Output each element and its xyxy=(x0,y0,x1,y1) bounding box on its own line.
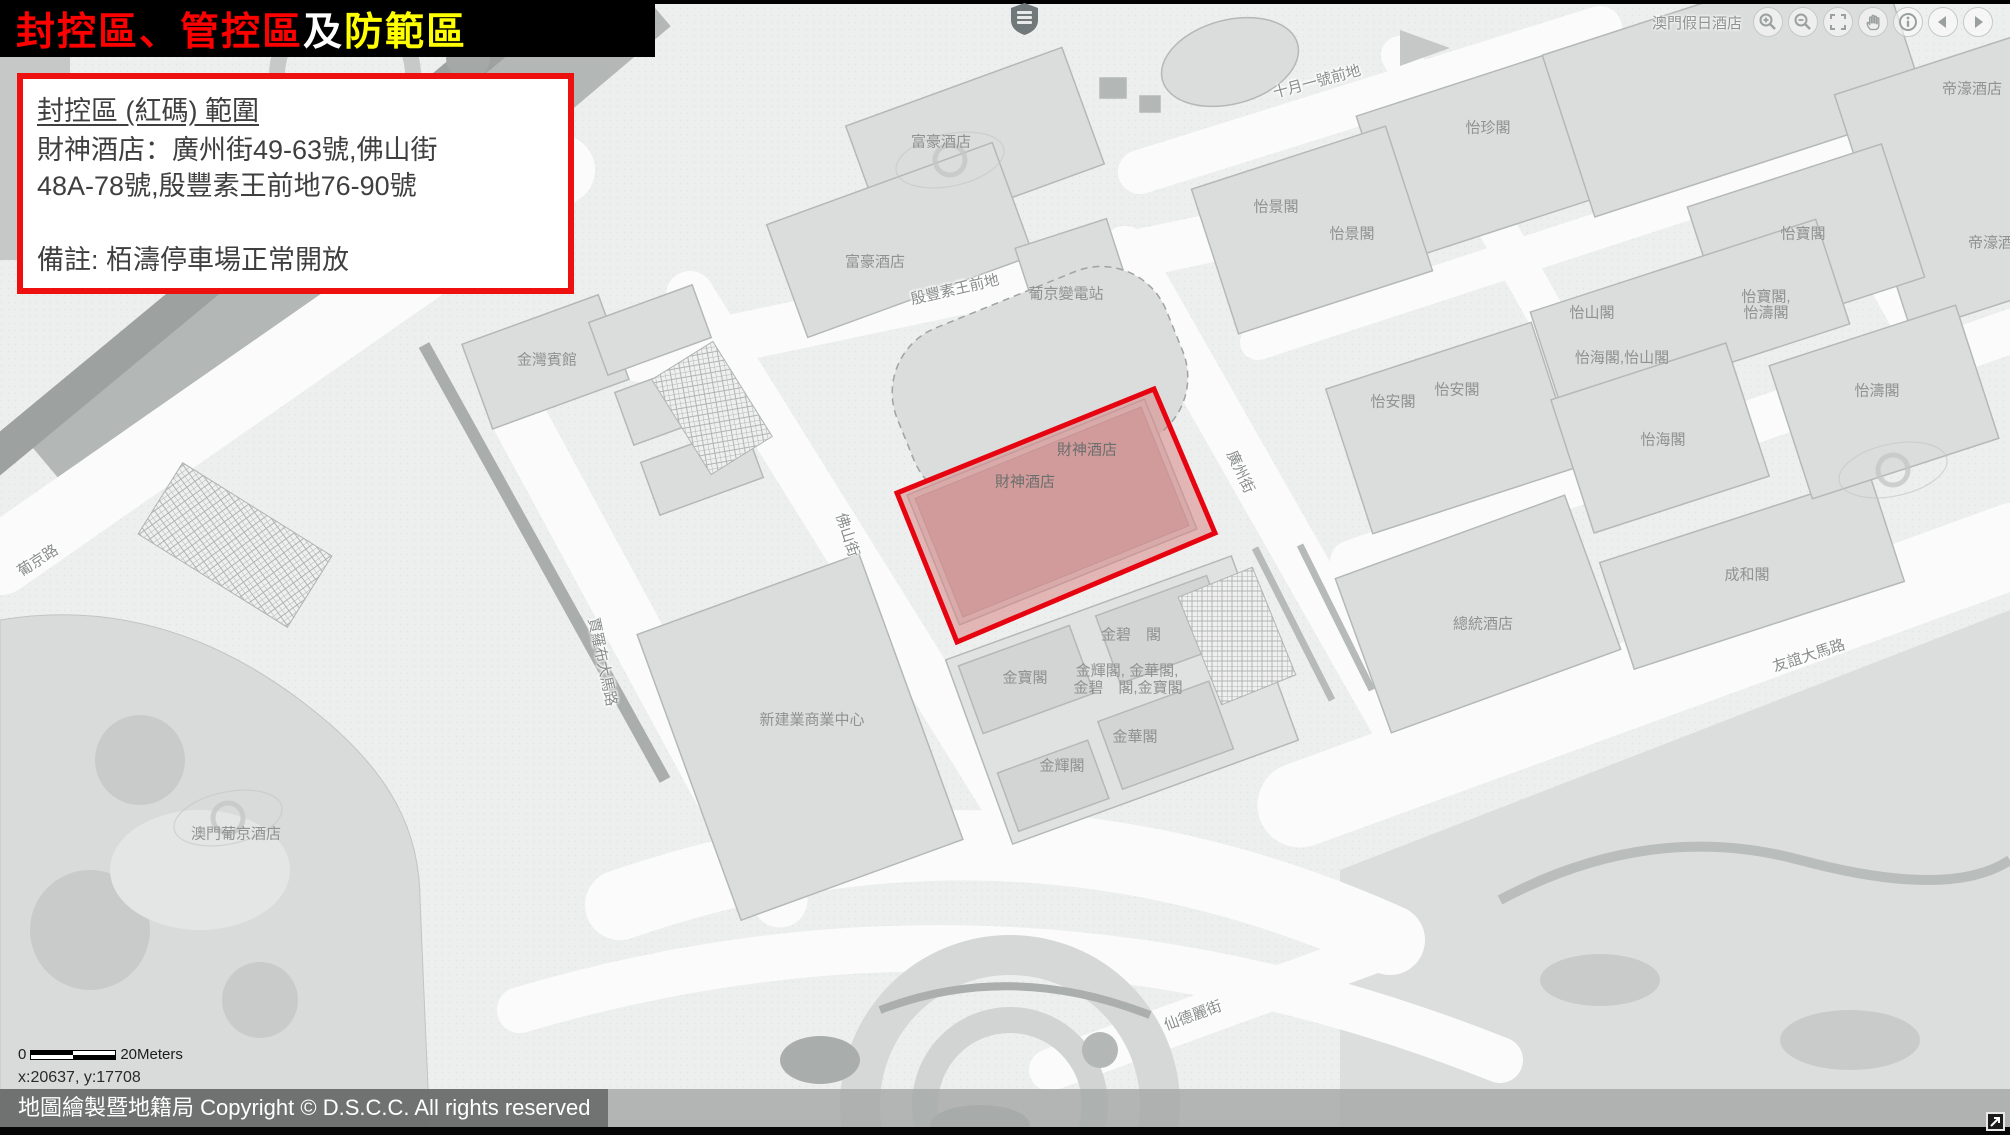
previous-extent-button[interactable] xyxy=(1928,7,1958,37)
info-heading: 封控區 (紅碼) 範圍 xyxy=(37,89,554,128)
pan-button[interactable] xyxy=(1858,7,1888,37)
page-title: 封控區、管控區及防範區 xyxy=(0,0,655,57)
map-application: 十月一號前地富豪酒店富豪酒店葡京變電站怡珍閣怡景閣怡景閣帝濠酒店帝濠酒店怡寶閣怡… xyxy=(0,0,2010,1135)
title-yellow-part: 防範區 xyxy=(344,1,467,57)
copyright-text: 地圖繪製暨地籍局 Copyright © D.S.C.C. All rights… xyxy=(0,1089,608,1127)
scale-zero: 0 xyxy=(18,1046,26,1063)
expand-corner-button[interactable] xyxy=(1986,1112,2005,1131)
info-note: 備註: 栢濤停車場正常開放 xyxy=(37,238,554,277)
zoom-in-button[interactable] xyxy=(1753,7,1783,37)
shield-icon xyxy=(1011,3,1038,35)
fullscreen-button[interactable] xyxy=(1823,7,1853,37)
title-white-part: 及 xyxy=(303,1,344,57)
scale-bar-graphic xyxy=(30,1050,116,1060)
pan-hand-icon xyxy=(1863,12,1883,32)
zoom-out-icon xyxy=(1793,12,1813,32)
identify-button[interactable] xyxy=(1893,7,1923,37)
zoom-out-button[interactable] xyxy=(1788,7,1818,37)
next-extent-button[interactable] xyxy=(1963,7,1993,37)
map-toolbar: 澳門假日酒店 xyxy=(1652,7,1993,37)
forward-arrow-icon xyxy=(1968,12,1988,32)
hotel-label: 澳門假日酒店 xyxy=(1652,12,1742,33)
info-icon xyxy=(1898,12,1918,32)
fullscreen-icon xyxy=(1828,12,1848,32)
title-red-part: 封控區、管控區 xyxy=(16,1,303,57)
lockdown-info-box: 封控區 (紅碼) 範圍 財神酒店：廣州街49-63號,佛山街 48A-78號,殷… xyxy=(17,73,574,294)
bottom-border-strip xyxy=(0,1127,2010,1135)
zoom-in-icon xyxy=(1758,12,1778,32)
back-arrow-icon xyxy=(1933,12,1953,32)
cursor-coordinates: x:20637, y:17708 xyxy=(18,1069,141,1087)
diagonal-arrow-icon xyxy=(1989,1115,2002,1128)
footer-bar: 地圖繪製暨地籍局 Copyright © D.S.C.C. All rights… xyxy=(0,1089,2010,1127)
info-line1: 財神酒店：廣州街49-63號,佛山街 xyxy=(37,132,554,168)
info-line2: 48A-78號,殷豐素王前地76-90號 xyxy=(37,168,554,204)
scale-bar: 0 20Meters xyxy=(18,1046,183,1063)
scale-distance: 20Meters xyxy=(120,1046,183,1063)
